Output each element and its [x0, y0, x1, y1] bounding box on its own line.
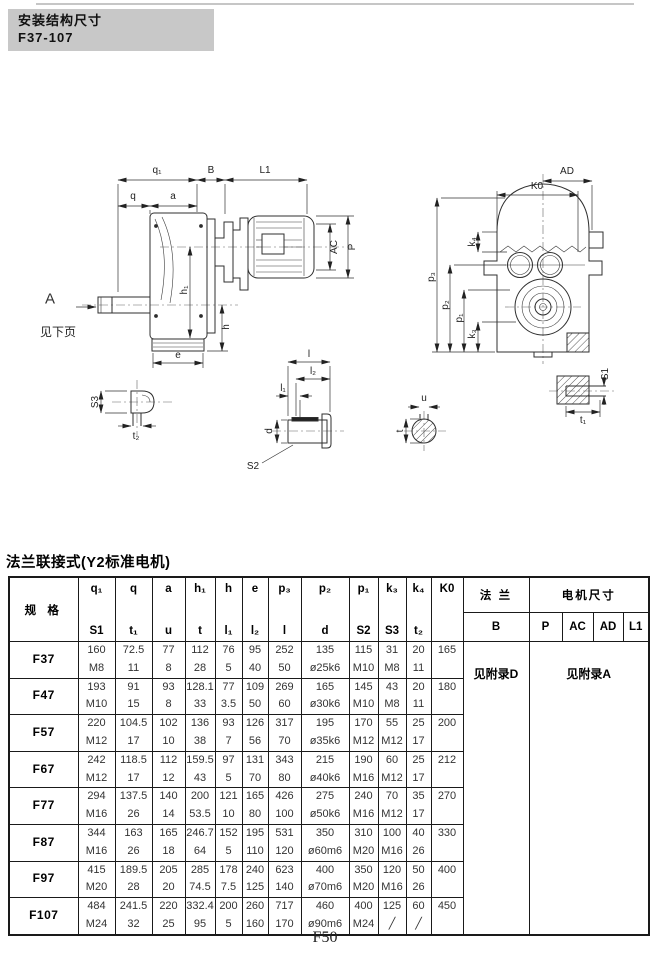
dim-label-ac: AC — [330, 240, 340, 254]
value-cell: 15 — [115, 696, 152, 714]
value-cell: 140 — [152, 788, 185, 806]
dim-label-e: e — [175, 351, 181, 361]
value-cell: 10 — [152, 733, 185, 751]
value-cell: 484 — [78, 898, 115, 916]
dim-label-ad: AD — [560, 167, 574, 177]
value-cell: 460 — [301, 898, 349, 916]
value-cell: 28 — [185, 660, 215, 678]
value-cell: M16 — [349, 806, 378, 824]
value-cell: M8 — [78, 660, 115, 678]
value-cell: 11 — [406, 660, 431, 678]
value-cell: 118.5 — [115, 751, 152, 769]
value-cell: 137.5 — [115, 788, 152, 806]
header-bottom-label: l — [269, 625, 301, 637]
value-cell: 56 — [242, 733, 268, 751]
spec-cell: F97 — [9, 861, 78, 898]
value-cell: 415 — [78, 861, 115, 879]
value-cell: 76 — [215, 642, 242, 660]
dim-label-l1-top: L1 — [259, 166, 270, 176]
value-cell: 77 — [215, 678, 242, 696]
section-title: 法兰联接式(Y2标准电机) — [6, 551, 170, 572]
value-cell: 260 — [242, 898, 268, 916]
dimension-table: 规 格 q₁S1 qt₁ au h₁t hl₁ el₂ p₃l p₂d p₁S2… — [8, 576, 650, 936]
value-cell: 109 — [242, 678, 268, 696]
technical-drawings — [0, 0, 650, 540]
value-cell: 102 — [152, 715, 185, 733]
col-header-motor-l1: L1 — [623, 613, 649, 642]
value-cell: M12 — [378, 770, 406, 788]
value-cell: 20 — [152, 879, 185, 897]
dim-label-b: B — [208, 166, 215, 176]
value-cell: M16 — [378, 879, 406, 897]
value-cell: 60 — [268, 696, 301, 714]
value-cell: 55 — [378, 715, 406, 733]
value-cell: 17 — [406, 770, 431, 788]
motor-note: 见附录A — [530, 666, 649, 684]
k0-value-cell: 400 — [431, 861, 463, 898]
header-top-label: p₃ — [269, 583, 301, 595]
value-cell: 126 — [242, 715, 268, 733]
dim-label-p: P — [348, 244, 358, 251]
col-header-k3-s3: k₃S3 — [378, 577, 406, 642]
motor-note-cell: 见附录A — [529, 642, 649, 935]
value-cell: 131 — [242, 751, 268, 769]
value-cell: 121 — [215, 788, 242, 806]
value-cell: 170 — [349, 715, 378, 733]
col-header-h-l1: hl₁ — [215, 577, 242, 642]
group-header-motor: 电机尺寸 — [529, 577, 649, 613]
value-cell: M16 — [78, 843, 115, 861]
value-cell: 74.5 — [185, 879, 215, 897]
spec-cell: F57 — [9, 715, 78, 752]
value-cell: 26 — [115, 843, 152, 861]
dim-label-k0: K0 — [531, 182, 543, 192]
dim-label-t2: t₂ — [133, 432, 140, 442]
value-cell: 40 — [242, 660, 268, 678]
value-cell: 38 — [185, 733, 215, 751]
value-cell: 135 — [301, 642, 349, 660]
col-header-p3-l: p₃l — [268, 577, 301, 642]
value-cell: 220 — [78, 715, 115, 733]
header-top-label: K0 — [432, 583, 463, 595]
k0-value-cell: 330 — [431, 824, 463, 861]
terminal-box — [262, 234, 284, 254]
value-cell: 12 — [152, 770, 185, 788]
value-cell: 200 — [185, 788, 215, 806]
header-bottom-label: S1 — [79, 625, 115, 637]
value-cell: 104.5 — [115, 715, 152, 733]
value-cell: 717 — [268, 898, 301, 916]
header-top-label: p₂ — [302, 583, 349, 595]
value-cell: 112 — [185, 642, 215, 660]
value-cell: 60 — [406, 898, 431, 916]
value-cell: 70 — [268, 733, 301, 751]
spec-cell: F87 — [9, 824, 78, 861]
value-cell: 8 — [152, 660, 185, 678]
spec-table-body: F3716072.57711276952521351153120165见附录D见… — [9, 642, 649, 935]
header-bottom-label: t₁ — [116, 625, 152, 637]
value-cell: 25 — [406, 715, 431, 733]
value-cell: 93 — [215, 715, 242, 733]
dim-label-d: d — [265, 428, 275, 434]
value-cell: 50 — [268, 660, 301, 678]
dim-label-t: t — [396, 430, 406, 433]
value-cell: 50 — [242, 696, 268, 714]
dim-label-p2: p₂ — [441, 300, 451, 309]
value-cell: M16 — [378, 843, 406, 861]
col-header-e-l2: el₂ — [242, 577, 268, 642]
value-cell: ø30k6 — [301, 696, 349, 714]
header-bottom-label: d — [302, 625, 349, 637]
value-cell: 240 — [349, 788, 378, 806]
value-cell: 26 — [115, 806, 152, 824]
see-next-page-note: 见下页 — [40, 326, 76, 338]
dim-label-u: u — [421, 394, 427, 404]
value-cell: 200 — [215, 898, 242, 916]
value-cell: 43 — [185, 770, 215, 788]
value-cell: 165 — [152, 824, 185, 842]
value-cell: 10 — [215, 806, 242, 824]
dim-label-k3: k₃ — [468, 329, 478, 338]
value-cell: 145 — [349, 678, 378, 696]
dim-label-q: q — [130, 192, 136, 202]
value-cell: 7 — [215, 733, 242, 751]
header-bottom-label: S3 — [379, 625, 406, 637]
value-cell: 20 — [406, 678, 431, 696]
value-cell: 246.7 — [185, 824, 215, 842]
header-bottom-label: t — [186, 625, 215, 637]
dim-label-s1: S1 — [601, 368, 611, 380]
value-cell: 275 — [301, 788, 349, 806]
value-cell: 195 — [301, 715, 349, 733]
value-cell: M8 — [378, 660, 406, 678]
value-cell: 350 — [301, 824, 349, 842]
dim-label-l2: l₂ — [310, 367, 316, 377]
value-cell: 17 — [115, 733, 152, 751]
value-cell: 97 — [215, 751, 242, 769]
value-cell: 35 — [406, 788, 431, 806]
value-cell: 285 — [185, 861, 215, 879]
value-cell: 400 — [349, 898, 378, 916]
dim-label-s2: S2 — [247, 462, 259, 472]
spec-cell: F37 — [9, 642, 78, 679]
value-cell: M12 — [349, 733, 378, 751]
value-cell: 7.5 — [215, 879, 242, 897]
value-cell: 70 — [242, 770, 268, 788]
value-cell: M8 — [378, 696, 406, 714]
value-cell: 20 — [406, 642, 431, 660]
value-cell: 5 — [215, 770, 242, 788]
spec-cell: F77 — [9, 788, 78, 825]
col-header-motor-ac: AC — [562, 613, 593, 642]
value-cell: 269 — [268, 678, 301, 696]
value-cell: 64 — [185, 843, 215, 861]
value-cell: 220 — [152, 898, 185, 916]
value-cell: 100 — [268, 806, 301, 824]
view-a-label: A — [45, 292, 55, 307]
value-cell: 178 — [215, 861, 242, 879]
col-header-p1-s2: p₁S2 — [349, 577, 378, 642]
value-cell: 14 — [152, 806, 185, 824]
end-view-housing — [484, 184, 603, 357]
header-top-label: a — [153, 583, 185, 595]
k0-value-cell: 212 — [431, 751, 463, 788]
value-cell: 343 — [268, 751, 301, 769]
value-cell: M10 — [349, 696, 378, 714]
value-cell: 93 — [152, 678, 185, 696]
side-view-drawing — [76, 180, 354, 368]
value-cell: 400 — [301, 861, 349, 879]
value-cell: 317 — [268, 715, 301, 733]
page-number: F50 — [0, 929, 650, 947]
col-header-a-u: au — [152, 577, 185, 642]
header-top-label: q — [116, 583, 152, 595]
value-cell: M12 — [78, 733, 115, 751]
header-bottom-label: l₂ — [243, 625, 268, 637]
value-cell: 5 — [215, 660, 242, 678]
value-cell: ø25k6 — [301, 660, 349, 678]
header-top-label: k₃ — [379, 583, 406, 595]
value-cell: 28 — [115, 879, 152, 897]
header-row-1: 规 格 q₁S1 qt₁ au h₁t hl₁ el₂ p₃l p₂d p₁S2… — [9, 577, 649, 613]
value-cell: M16 — [78, 806, 115, 824]
value-cell: 128.1 — [185, 678, 215, 696]
col-header-q-t1: qt₁ — [115, 577, 152, 642]
value-cell: 11 — [406, 696, 431, 714]
value-cell: 31 — [378, 642, 406, 660]
detail-tapped-hole — [549, 376, 614, 417]
value-cell: 5 — [215, 843, 242, 861]
value-cell: 159.5 — [185, 751, 215, 769]
value-cell: 531 — [268, 824, 301, 842]
value-cell: 80 — [268, 770, 301, 788]
header-bottom-label: t₂ — [407, 625, 431, 637]
value-cell: 193 — [78, 678, 115, 696]
value-cell: 80 — [242, 806, 268, 824]
value-cell: 120 — [378, 861, 406, 879]
dim-label-p3: p₃ — [427, 272, 437, 282]
value-cell: 11 — [115, 660, 152, 678]
dim-label-l: l — [308, 350, 310, 360]
group-header-flange: 法 兰 — [463, 577, 529, 613]
value-cell: M20 — [349, 879, 378, 897]
value-cell: 18 — [152, 843, 185, 861]
col-header-k0: K0 — [431, 577, 463, 642]
col-header-q1-s1: q₁S1 — [78, 577, 115, 642]
value-cell: 40 — [406, 824, 431, 842]
value-cell: 95 — [242, 642, 268, 660]
value-cell: 163 — [115, 824, 152, 842]
detail-screw-s3 — [101, 380, 172, 436]
value-cell: 25 — [406, 751, 431, 769]
value-cell: 205 — [152, 861, 185, 879]
value-cell: ø35k6 — [301, 733, 349, 751]
value-cell: 140 — [268, 879, 301, 897]
value-cell: 294 — [78, 788, 115, 806]
value-cell: 160 — [78, 642, 115, 660]
k0-value-cell: 270 — [431, 788, 463, 825]
value-cell: 53.5 — [185, 806, 215, 824]
value-cell: 190 — [349, 751, 378, 769]
value-cell: 112 — [152, 751, 185, 769]
header-bottom-label: l₁ — [216, 625, 242, 637]
dim-label-t1: t₁ — [580, 416, 586, 426]
col-header-motor-ad: AD — [593, 613, 623, 642]
value-cell: ø60m6 — [301, 843, 349, 861]
k0-value-cell: 165 — [431, 642, 463, 679]
value-cell: 26 — [406, 843, 431, 861]
value-cell: M16 — [349, 770, 378, 788]
k0-value-cell: 200 — [431, 715, 463, 752]
gearbox-housing — [150, 213, 215, 351]
value-cell: ø40k6 — [301, 770, 349, 788]
value-cell: 240 — [242, 861, 268, 879]
value-cell: 241.5 — [115, 898, 152, 916]
detail-shaft-s2 — [262, 362, 344, 463]
value-cell: M20 — [349, 843, 378, 861]
flange-note-cell: 见附录D — [463, 642, 529, 935]
header-top-label: h₁ — [186, 583, 215, 595]
value-cell: 252 — [268, 642, 301, 660]
value-cell: 189.5 — [115, 861, 152, 879]
value-cell: 3.5 — [215, 696, 242, 714]
value-cell: 100 — [378, 824, 406, 842]
dim-label-l1-small: l₁ — [280, 384, 286, 394]
spec-cell: F47 — [9, 678, 78, 715]
value-cell: 165 — [242, 788, 268, 806]
value-cell: M12 — [78, 770, 115, 788]
value-cell: ø50k6 — [301, 806, 349, 824]
value-cell: 91 — [115, 678, 152, 696]
value-cell: 110 — [242, 843, 268, 861]
value-cell: M10 — [349, 660, 378, 678]
col-header-k4-t2: k₄t₂ — [406, 577, 431, 642]
value-cell: 426 — [268, 788, 301, 806]
value-cell: 623 — [268, 861, 301, 879]
col-header-motor-p: P — [529, 613, 562, 642]
value-cell: 17 — [406, 806, 431, 824]
dim-label-k4: k₄ — [468, 237, 478, 246]
value-cell: 332.4 — [185, 898, 215, 916]
detail-key-section — [404, 407, 446, 451]
value-cell: 70 — [378, 788, 406, 806]
value-cell: 26 — [406, 879, 431, 897]
value-cell: 50 — [406, 861, 431, 879]
value-cell: 125 — [378, 898, 406, 916]
end-view-drawing — [432, 174, 603, 364]
value-cell: 195 — [242, 824, 268, 842]
dim-label-p1: p₁ — [455, 314, 465, 323]
header-top-label: k₄ — [407, 583, 431, 595]
k0-value-cell: 180 — [431, 678, 463, 715]
header-top-label: q₁ — [79, 583, 115, 595]
value-cell: M12 — [378, 733, 406, 751]
spec-cell: F67 — [9, 751, 78, 788]
header-bottom-label: u — [153, 625, 185, 637]
value-cell: 242 — [78, 751, 115, 769]
value-cell: M10 — [78, 696, 115, 714]
table-row: F3716072.57711276952521351153120165见附录D见… — [9, 642, 649, 660]
value-cell: 115 — [349, 642, 378, 660]
dim-label-a: a — [170, 192, 176, 202]
value-cell: 215 — [301, 751, 349, 769]
dim-label-h1: h₁ — [180, 286, 190, 295]
dim-label-h: h — [222, 324, 232, 330]
value-cell: 43 — [378, 678, 406, 696]
motor-adapter — [215, 218, 248, 290]
header-bottom-label: S2 — [350, 625, 378, 637]
value-cell: 8 — [152, 696, 185, 714]
value-cell: 17 — [406, 733, 431, 751]
value-cell: 152 — [215, 824, 242, 842]
flange-note: 见附录D — [464, 666, 529, 684]
header-top-label: p₁ — [350, 583, 378, 595]
value-cell: 60 — [378, 751, 406, 769]
col-header-spec: 规 格 — [9, 577, 78, 642]
end-view-dimensions — [432, 181, 592, 352]
value-cell: 77 — [152, 642, 185, 660]
value-cell: 136 — [185, 715, 215, 733]
value-cell: M20 — [78, 879, 115, 897]
value-cell: 33 — [185, 696, 215, 714]
value-cell: ø70m6 — [301, 879, 349, 897]
dim-label-q1: q₁ — [153, 166, 162, 176]
value-cell: 165 — [301, 678, 349, 696]
col-header-p2-d: p₂d — [301, 577, 349, 642]
header-top-label: e — [243, 583, 268, 595]
value-cell: 344 — [78, 824, 115, 842]
header-top-label: h — [216, 583, 242, 595]
col-header-flange-b: B — [463, 613, 529, 642]
value-cell: 17 — [115, 770, 152, 788]
side-view-centerlines — [82, 247, 352, 305]
value-cell: 120 — [268, 843, 301, 861]
value-cell: 310 — [349, 824, 378, 842]
value-cell: M12 — [378, 806, 406, 824]
dim-label-s3: S3 — [91, 396, 101, 408]
value-cell: 72.5 — [115, 642, 152, 660]
value-cell: 350 — [349, 861, 378, 879]
col-header-h1-t: h₁t — [185, 577, 215, 642]
value-cell: 125 — [242, 879, 268, 897]
